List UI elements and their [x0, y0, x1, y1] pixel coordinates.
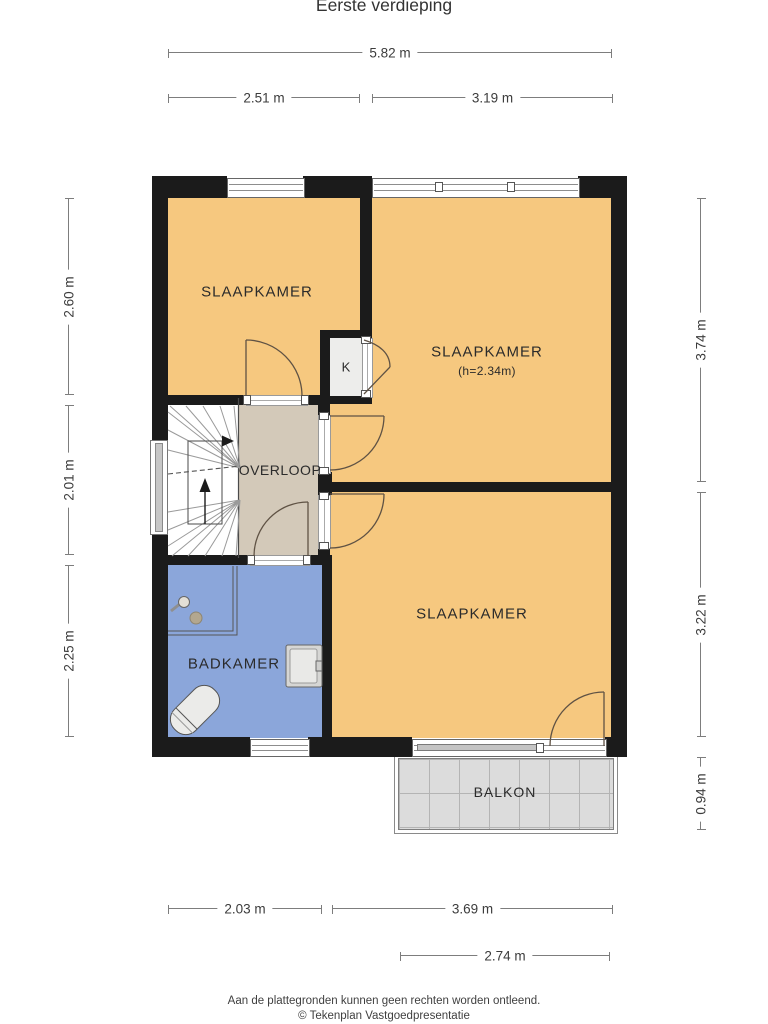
dim-left-top-label: 2.60 m: [62, 269, 77, 324]
label-closet: K: [342, 360, 351, 375]
dim-top-right-room-label: 3.19 m: [465, 91, 520, 106]
wall-right: [611, 176, 627, 757]
dim-bottom-left-room: 2.03 m: [168, 908, 322, 909]
hinge-peg: [319, 492, 329, 500]
wall-between-top-bedrooms: [360, 198, 372, 330]
label-landing: OVERLOOP: [239, 462, 322, 478]
dim-top-right-room: 3.19 m: [372, 97, 613, 98]
hinge-peg: [301, 395, 309, 405]
room-bathroom: [168, 558, 322, 738]
hinge-peg: [247, 555, 255, 565]
window-bathroom-bottom: [250, 739, 310, 757]
footer-disclaimer: Aan de plattegronden kunnen geen rechten…: [0, 995, 768, 1007]
dim-top-left-room-label: 2.51 m: [236, 91, 291, 106]
window-top-right: [372, 178, 580, 198]
hinge-peg: [243, 395, 251, 405]
dim-bottom-left-room-label: 2.03 m: [217, 902, 272, 917]
closet-wall-left: [320, 330, 330, 404]
dim-left-top: 2.60 m: [68, 198, 69, 395]
label-bedroom-height: (h=2.34m): [458, 364, 516, 378]
dim-left-middle-label: 2.01 m: [62, 452, 77, 507]
dim-right-top: 3.74 m: [700, 198, 701, 482]
wall-bathroom-top-b: [308, 555, 332, 565]
dim-bottom-right-room-label: 3.69 m: [445, 902, 500, 917]
dim-bottom-balcony-label: 2.74 m: [477, 949, 532, 964]
page-title: Eerste verdieping: [0, 0, 768, 16]
floorplan-page: { "title": "Eerste verdieping", "rooms":…: [0, 0, 768, 1024]
dim-right-balcony-label: 0.94 m: [694, 766, 709, 821]
dim-left-middle: 2.01 m: [68, 405, 69, 555]
label-balcony: BALKON: [474, 784, 537, 800]
dim-left-bottom-label: 2.25 m: [62, 623, 77, 678]
dim-top-left-room: 2.51 m: [168, 97, 360, 98]
dim-right-balcony: 0.94 m: [700, 757, 701, 830]
wall-left-lower: [152, 533, 168, 757]
window-mullion: [507, 182, 515, 192]
room-landing: [236, 398, 322, 558]
wall-between-right-bedrooms: [322, 482, 613, 492]
label-bedroom-top-left: SLAAPKAMER: [201, 284, 313, 301]
dim-right-middle-label: 3.22 m: [694, 587, 709, 642]
dim-top-total: 5.82 m: [168, 52, 612, 53]
wall-top-2: [303, 176, 372, 198]
wall-bathroom-right: [322, 565, 332, 737]
footer-credit: © Tekenplan Vastgoedpresentatie: [0, 1010, 768, 1022]
label-bedroom-top-right: SLAAPKAMER: [431, 344, 543, 361]
dim-right-middle: 3.22 m: [700, 492, 701, 737]
doorway-bedroom3: [318, 495, 331, 549]
wall-bedroom1-bottom-a: [168, 395, 246, 405]
doorway-bathroom: [250, 555, 310, 566]
window-top-left: [227, 178, 305, 198]
window-mullion: [435, 182, 443, 192]
doorway-bedroom1: [246, 395, 308, 406]
dim-bottom-right-room: 3.69 m: [332, 908, 613, 909]
wall-bottom-2: [308, 737, 412, 757]
dim-bottom-balcony: 2.74 m: [400, 955, 610, 956]
hinge-peg: [319, 412, 329, 420]
window-left-stairs: [150, 440, 168, 535]
hinge-peg: [303, 555, 311, 565]
dim-right-top-label: 3.74 m: [694, 312, 709, 367]
hinge-peg: [319, 542, 329, 550]
balcony-slider-rail: [417, 744, 539, 751]
balcony-mullion: [536, 743, 544, 753]
wall-left-upper: [152, 176, 168, 440]
hinge-peg: [361, 336, 371, 344]
dim-top-total-label: 5.82 m: [362, 46, 417, 61]
dim-left-bottom: 2.25 m: [68, 565, 69, 737]
label-bathroom: BADKAMER: [188, 656, 280, 673]
hinge-peg: [361, 390, 371, 398]
doorway-closet: [362, 338, 373, 398]
wall-bathroom-top-a: [152, 555, 250, 565]
wall-bottom-3: [605, 737, 627, 757]
stairwell: [168, 398, 238, 558]
wall-bottom-1: [152, 737, 250, 757]
label-bedroom-bottom: SLAAPKAMER: [416, 606, 528, 623]
